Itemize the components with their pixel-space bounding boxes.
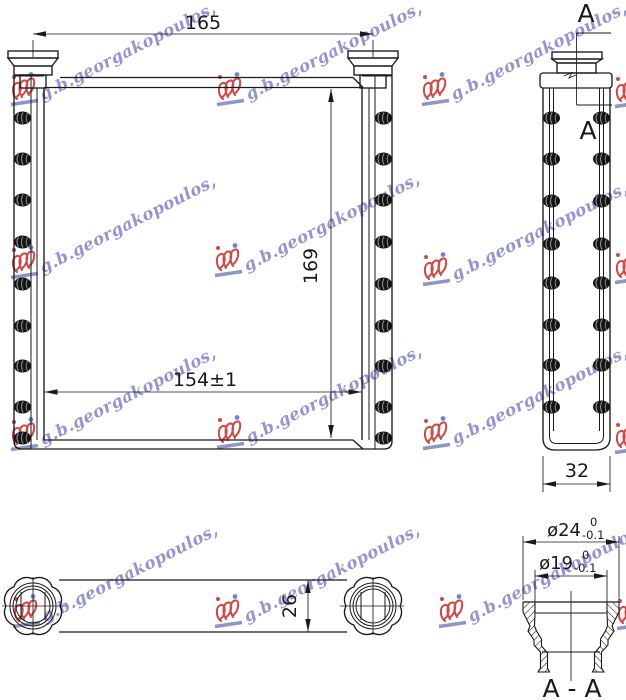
dim-154-label: 154±1 bbox=[173, 369, 237, 391]
side-body bbox=[543, 88, 610, 450]
section-marker-a-top: A bbox=[577, 0, 594, 28]
section-title: A - A bbox=[542, 674, 601, 700]
dim-26-label: 26 bbox=[279, 594, 301, 618]
right-pipe-collar bbox=[340, 577, 404, 635]
front-view: 165 169 154±1 bbox=[8, 12, 398, 449]
dia-19-label: ø19 bbox=[539, 553, 573, 574]
right-tank bbox=[362, 76, 392, 449]
technical-drawing-page: g.b.georgakopoulos, g.b.georgakopoulos, … bbox=[0, 0, 626, 700]
left-tank bbox=[14, 76, 44, 449]
dia-19-tol-lower: -0.1 bbox=[574, 561, 596, 575]
dia-24-tol-upper: 0 bbox=[590, 515, 597, 529]
section-view: ø24 0 -0.1 ø19 0 -0.1 A - A bbox=[523, 515, 619, 700]
dia-19-tol-upper: 0 bbox=[582, 548, 589, 562]
dim-core-width: 154±1 bbox=[45, 369, 362, 395]
section-marker-a-bottom: A bbox=[579, 116, 596, 145]
dim-169-label: 169 bbox=[300, 248, 322, 284]
side-pipe bbox=[552, 52, 602, 73]
dim-32-label: 32 bbox=[565, 460, 589, 482]
dim-overall-width: 165 bbox=[33, 12, 373, 57]
bottom-view: 26 bbox=[2, 577, 404, 635]
header-plates bbox=[22, 78, 384, 450]
side-view: A A 32 bbox=[540, 0, 612, 492]
dim-165-label: 165 bbox=[185, 12, 221, 34]
dim-depth: 32 bbox=[543, 456, 610, 492]
dia-24-tol-lower: -0.1 bbox=[582, 528, 604, 542]
dim-thickness: 26 bbox=[279, 580, 311, 632]
front-clips bbox=[14, 112, 392, 445]
heater-core-drawing: 165 169 154±1 bbox=[0, 0, 626, 700]
dia-24-label: ø24 bbox=[547, 520, 581, 541]
dim-core-height: 169 bbox=[300, 89, 334, 438]
left-pipe-collar bbox=[2, 577, 66, 635]
